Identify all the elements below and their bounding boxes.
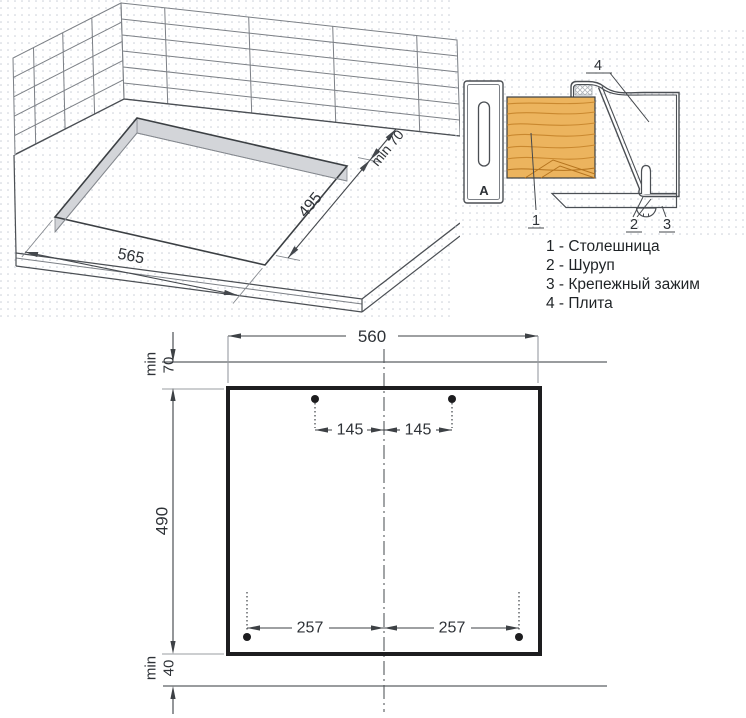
- fixing-bracket: A: [464, 81, 503, 203]
- installation-diagram-page: { "iso_view": { "dim_width": "565", "dim…: [0, 0, 746, 718]
- dimension-257-left: 257: [247, 620, 384, 637]
- dimension-145-right: 145: [384, 422, 452, 439]
- bracket-logo-letter: A: [479, 183, 489, 198]
- legend-item-screw: 2 - Шуруп: [546, 256, 700, 275]
- isometric-cutout-view: 565 495 min 70: [0, 0, 460, 325]
- hole-dim-145-left-label: 145: [337, 422, 364, 439]
- legend-item-clamp: 3 - Крепежный зажим: [546, 275, 700, 294]
- hole-dim-257-left-label: 257: [297, 620, 324, 637]
- callout-3-label: 3: [663, 217, 671, 233]
- dim-70-label: 70: [161, 357, 178, 374]
- dimension-min40: min 40: [143, 656, 178, 714]
- countertop-wood-section: [507, 97, 595, 178]
- bracket-slot: [479, 102, 490, 166]
- mounting-holes: [243, 395, 523, 641]
- legend-item-countertop: 1 - Столешница: [546, 237, 700, 256]
- legend-item-hob: 4 - Плита: [546, 294, 700, 313]
- sealing-gasket: [575, 85, 592, 95]
- mounting-section-view: A: [455, 30, 746, 235]
- callout-4-label: 4: [594, 58, 602, 74]
- dimension-257-right: 257: [384, 620, 519, 637]
- hole-leaders: [247, 403, 519, 632]
- section-legend: 1 - Столешница 2 - Шуруп 3 - Крепежный з…: [546, 237, 700, 313]
- dim-560-label: 560: [358, 330, 386, 346]
- dim-490-label: 490: [153, 507, 172, 535]
- dim-min-top-label: min: [143, 352, 160, 376]
- cutout-plan-view: 560 min 70 490 min 40: [100, 330, 650, 718]
- dimension-145-left: 145: [315, 422, 384, 439]
- dim-40-label: 40: [161, 660, 178, 677]
- hole-dim-145-right-label: 145: [405, 422, 432, 439]
- dim-min-bottom-label: min: [143, 656, 160, 680]
- hole-dim-257-right-label: 257: [439, 620, 466, 637]
- callout-2-label: 2: [630, 217, 638, 233]
- dimension-min70: min 70: [143, 332, 178, 376]
- dimension-490: 490: [153, 388, 225, 654]
- callout-1-label: 1: [532, 213, 540, 229]
